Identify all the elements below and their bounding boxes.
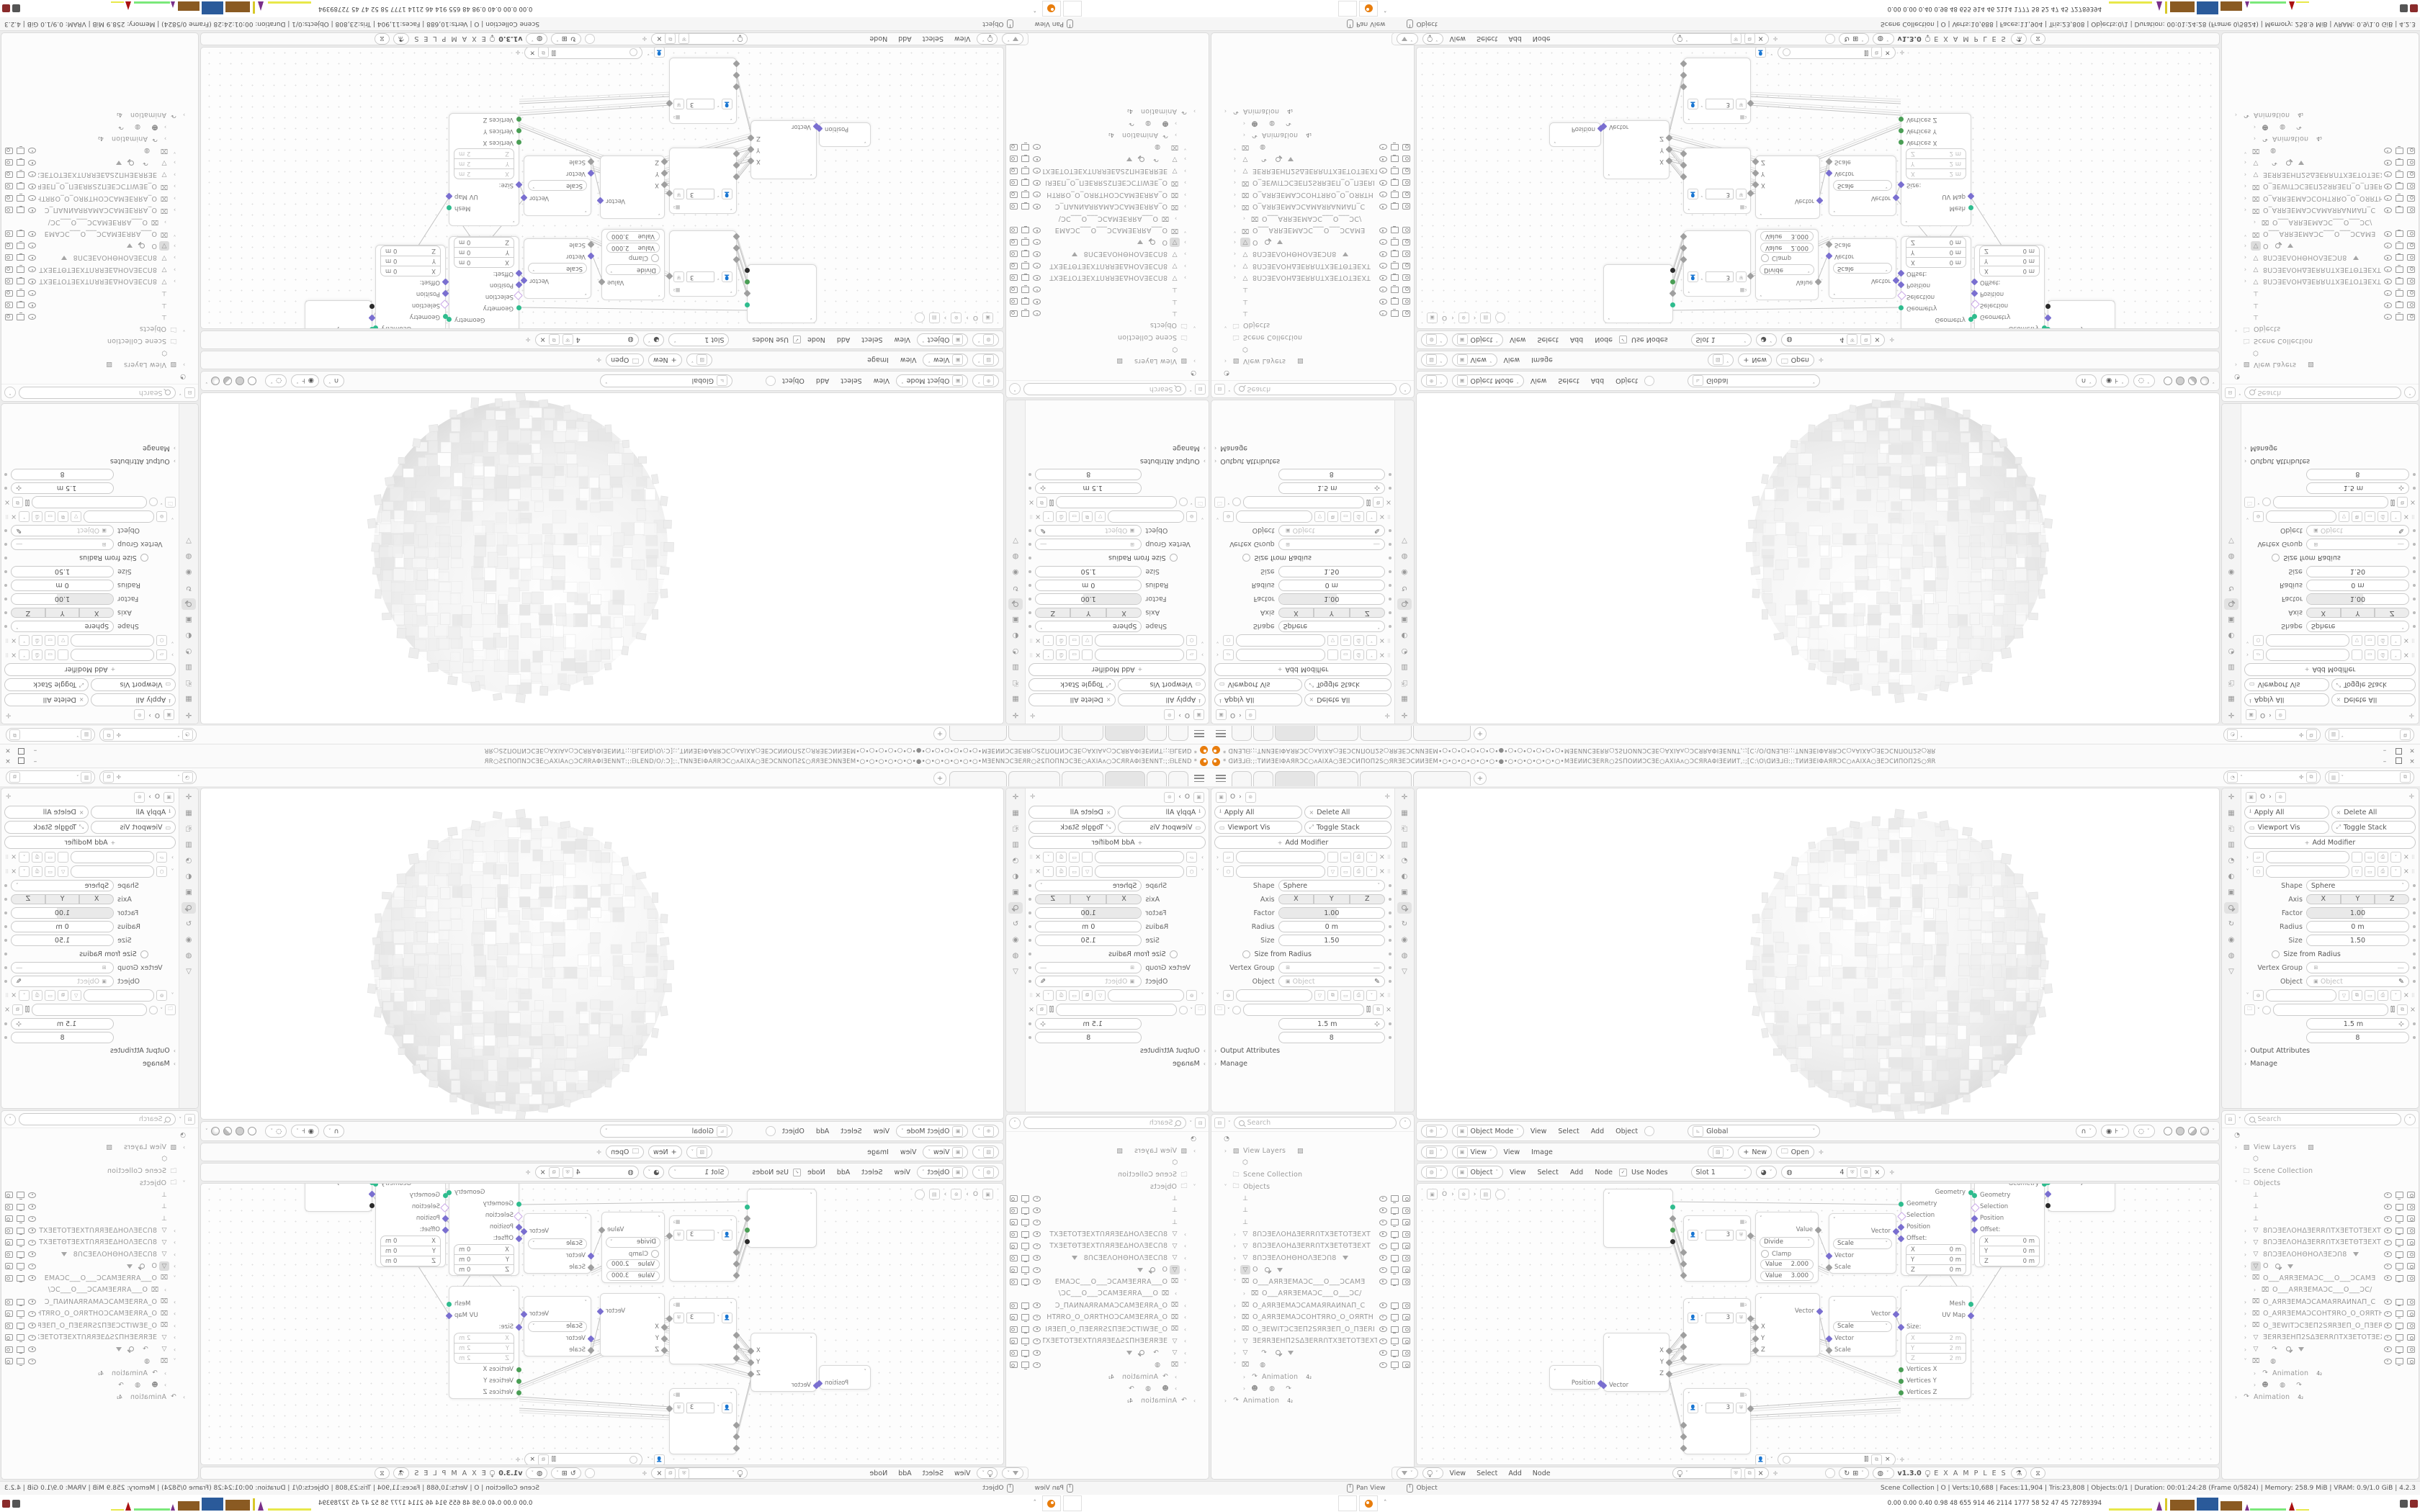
node[interactable]: ˅Position bbox=[819, 1365, 871, 1390]
viewport-menu-add[interactable]: Add bbox=[1589, 1128, 1606, 1135]
outliner-row[interactable]: ›⌧O_AЯRƎEMAƆCOHTЯRO_O_OЯRTH bbox=[3, 1308, 197, 1320]
viewport-disable-toggle[interactable] bbox=[1021, 298, 1029, 305]
node[interactable]: ˅GeometryGeometrySelectionPositionOffset… bbox=[449, 1183, 519, 1276]
hide-eye-toggle[interactable] bbox=[2384, 1251, 2392, 1257]
node-mini-row[interactable]: 👤˅3⛨ bbox=[1684, 270, 1750, 284]
render-disable-toggle[interactable] bbox=[5, 1323, 13, 1329]
render-icon[interactable]: ⎙ bbox=[1056, 635, 1067, 646]
workspace-tab[interactable] bbox=[949, 771, 1007, 786]
render-disable-toggle[interactable] bbox=[2407, 1310, 2415, 1317]
node-socket-input[interactable] bbox=[442, 279, 449, 286]
taskbar-blender-app[interactable] bbox=[1042, 1, 1061, 17]
hide-eye-toggle[interactable] bbox=[1379, 251, 1387, 257]
example-button-1[interactable]: ⚗ bbox=[393, 33, 410, 45]
render-disable-toggle[interactable] bbox=[2407, 243, 2415, 249]
render-disable-toggle[interactable] bbox=[1010, 1266, 1018, 1273]
node-socket-input[interactable] bbox=[2045, 315, 2052, 322]
node[interactable]: ˅▦₃👤˅3⛨ bbox=[669, 148, 737, 214]
viewport-vis-button[interactable]: ▭Viewport Vis bbox=[2244, 678, 2329, 691]
pin-icon[interactable]: ✛ bbox=[117, 774, 122, 780]
node-socket-output[interactable] bbox=[1816, 197, 1824, 204]
apply-all-button[interactable]: ⭳Apply All bbox=[2244, 806, 2329, 819]
outliner-row[interactable]: ⬡ bbox=[3, 347, 197, 359]
render-disable-toggle[interactable] bbox=[5, 195, 13, 202]
delete-all-button[interactable]: ×Delete All bbox=[1028, 806, 1116, 819]
properties-tab[interactable]: ◔ bbox=[1008, 855, 1023, 866]
node-socket-input[interactable] bbox=[1826, 1335, 1833, 1342]
hide-eye-toggle[interactable] bbox=[28, 1335, 36, 1341]
outliner-row[interactable]: ›☻◍↷ bbox=[1213, 1383, 1412, 1395]
viewport-disable-toggle[interactable] bbox=[1391, 274, 1399, 281]
node-socket-input[interactable] bbox=[1680, 174, 1688, 181]
hide-eye-toggle[interactable] bbox=[28, 160, 36, 166]
geonodes-size-field[interactable]: 1.5 m⊹ bbox=[2306, 1018, 2409, 1030]
copy-icon[interactable]: ⧉ bbox=[2306, 729, 2317, 740]
render-disable-toggle[interactable] bbox=[1402, 227, 1410, 233]
outliner-search-input[interactable]: Search bbox=[1234, 383, 1397, 395]
node-socket-input[interactable] bbox=[516, 181, 523, 189]
modifier-name-field[interactable] bbox=[1236, 989, 1312, 1002]
outliner-row[interactable]: ›▽8ՈƆƎEΛOHΘHOΛƎEƆՈ8 bbox=[3, 252, 197, 264]
taskbar-slot[interactable] bbox=[1063, 1, 1082, 17]
view-layer-name-field[interactable] bbox=[22, 730, 74, 739]
filter-dropdown[interactable]: ˅ bbox=[4, 1114, 16, 1125]
shading-rendered-button[interactable] bbox=[212, 1127, 220, 1135]
hide-eye-toggle[interactable] bbox=[1033, 144, 1041, 150]
copy-icon[interactable]: ⧉ bbox=[2397, 1004, 2408, 1015]
properties-tab[interactable]: ▦ bbox=[1397, 807, 1412, 819]
properties-tab[interactable]: ▦ bbox=[1397, 693, 1412, 705]
shader-menu-node[interactable]: Node bbox=[1592, 336, 1615, 344]
taskbar-blender-app[interactable] bbox=[1042, 1495, 1061, 1511]
material-icon-button[interactable]: ◕˅ bbox=[1756, 1166, 1778, 1179]
outliner-row[interactable]: 🗀Scene Collection bbox=[3, 335, 197, 347]
outliner-row[interactable]: ›▽ƎEЯRƎEHΠ2SΔƎERRՈTXƎETOTƎEXT bbox=[1213, 1336, 1412, 1348]
properties-tab[interactable]: ◐ bbox=[2224, 630, 2238, 642]
viewport-disable-toggle[interactable] bbox=[2396, 1346, 2403, 1353]
outliner-row[interactable]: ›▨View Layers▨ bbox=[3, 1142, 197, 1154]
properties-tab[interactable]: ◔ bbox=[2224, 646, 2238, 657]
properties-tab[interactable]: ▥ bbox=[1397, 662, 1412, 673]
render-icon[interactable]: ⎙ bbox=[32, 866, 42, 877]
node-socket-input[interactable] bbox=[1972, 1193, 1977, 1198]
node-socket-output[interactable] bbox=[748, 1347, 755, 1354]
geo-menu-select[interactable]: Select bbox=[920, 1470, 946, 1477]
apply-all-button[interactable]: ⭳Apply All bbox=[1214, 806, 1302, 819]
remove-modifier[interactable]: × bbox=[2403, 853, 2409, 861]
viewport-disable-toggle[interactable] bbox=[1021, 263, 1029, 269]
outliner-row[interactable]: 🗀Scene Collection bbox=[2223, 1166, 2417, 1178]
manage-collapse[interactable]: ›Manage bbox=[1028, 1058, 1206, 1069]
node-vector-field[interactable]: X0 m bbox=[454, 1244, 514, 1255]
viewport-disable-toggle[interactable] bbox=[1391, 1255, 1399, 1261]
toggle-stack-button[interactable]: ⤢Toggle Stack bbox=[4, 678, 89, 691]
viewport-vis-button[interactable]: ▭Viewport Vis bbox=[91, 821, 176, 834]
axis-toggle[interactable]: XYZ bbox=[1035, 608, 1142, 618]
node-socket-input[interactable] bbox=[1971, 1215, 1978, 1222]
modifier-name-field[interactable] bbox=[2266, 989, 2336, 1002]
outliner-row[interactable]: ›▽↷ bbox=[3, 157, 197, 169]
outliner-row[interactable]: 🗀Scene Collection bbox=[2223, 335, 2417, 347]
outliner-row[interactable]: ˅⌧◍ bbox=[2223, 145, 2417, 157]
hide-eye-toggle[interactable] bbox=[28, 279, 36, 284]
editor-type-button[interactable]: ◍˅ bbox=[1421, 1166, 1448, 1179]
add-modifier-button[interactable]: +Add Modifier bbox=[1214, 663, 1391, 676]
vertex-group-field[interactable]: ⊞— bbox=[1035, 539, 1142, 550]
node-socket-input[interactable] bbox=[588, 241, 595, 248]
collapse-caret[interactable]: ˆ bbox=[1034, 5, 1037, 12]
geonodes-count-field[interactable]: 8 bbox=[2306, 469, 2409, 480]
render-disable-toggle[interactable] bbox=[1402, 298, 1410, 305]
realtime-icon[interactable]: ▭ bbox=[1069, 635, 1080, 646]
node-header[interactable]: ˅ bbox=[820, 1366, 870, 1377]
node[interactable]: ˅▦₃👤˅3⛨ bbox=[1683, 148, 1751, 214]
modifier-name-field[interactable] bbox=[1095, 634, 1184, 647]
node-socket-input[interactable] bbox=[516, 1367, 521, 1372]
hide-eye-toggle[interactable] bbox=[1033, 1255, 1041, 1261]
viewport-disable-toggle[interactable] bbox=[1021, 156, 1029, 162]
node-socket-output[interactable] bbox=[748, 1370, 755, 1377]
hide-eye-toggle[interactable] bbox=[1033, 1362, 1041, 1368]
refresh-button[interactable]: ↻⊞˅ bbox=[551, 1467, 581, 1479]
properties-tab[interactable]: ▽ bbox=[181, 966, 196, 977]
node-socket-input[interactable] bbox=[588, 158, 595, 166]
render-disable-toggle[interactable] bbox=[1402, 1231, 1410, 1238]
node[interactable]: ˅ValueDivide˅ClampValue2.000Value3.000 bbox=[601, 1212, 665, 1283]
size-field[interactable]: 1.50 bbox=[1278, 566, 1385, 577]
node-group-row[interactable]: 🗀˅⫿⫿⧉× bbox=[1214, 496, 1391, 508]
render-disable-toggle[interactable] bbox=[1402, 239, 1410, 246]
outliner-row[interactable]: ›▽8ՈƆƎEΛOHΔƎERRՈTXƎETOTƎEXT bbox=[1008, 1228, 1207, 1241]
properties-tab[interactable]: ⎗ bbox=[181, 678, 196, 689]
render-disable-toggle[interactable] bbox=[5, 1263, 13, 1269]
pin-icon[interactable]: ✛ bbox=[526, 337, 531, 343]
node-select-row[interactable]: Scale˅ bbox=[1829, 1320, 1896, 1333]
use-nodes-checkbox[interactable]: ✓ bbox=[1619, 336, 1627, 344]
outliner-row[interactable]: ⊥ bbox=[1008, 307, 1207, 320]
add-modifier-button[interactable]: +Add Modifier bbox=[1028, 663, 1206, 676]
node-socket-input[interactable] bbox=[1971, 290, 1978, 297]
refresh-button[interactable]: ↻⊞˅ bbox=[1839, 33, 1868, 45]
node-vector-field[interactable]: Y2 m bbox=[1906, 1344, 1966, 1354]
outliner-row[interactable]: ›⌧O_ƎEWITƆCƎEΠ2SЯRƎEΠ_O_ΠƎERI bbox=[3, 181, 197, 193]
axis-y[interactable]: Y bbox=[2341, 894, 2375, 904]
node-header[interactable]: ˅ bbox=[751, 167, 816, 179]
extras-dropdown[interactable]: ˅ bbox=[19, 649, 30, 660]
node-socket-output[interactable] bbox=[447, 206, 452, 211]
size-from-radius-radio[interactable] bbox=[1170, 950, 1178, 958]
hide-eye-toggle[interactable] bbox=[1033, 1279, 1041, 1284]
render-disable-toggle[interactable] bbox=[5, 148, 13, 154]
render-disable-toggle[interactable] bbox=[1402, 1255, 1410, 1261]
properties-tab[interactable]: ✛ bbox=[1397, 791, 1412, 803]
render-disable-toggle[interactable] bbox=[1402, 156, 1410, 162]
node-socket-input[interactable] bbox=[1899, 140, 1904, 145]
properties-tab[interactable]: ▦ bbox=[181, 693, 196, 705]
geonodes-size-field[interactable]: 1.5 m⊹ bbox=[1278, 482, 1385, 494]
scene-name-field[interactable] bbox=[123, 730, 175, 739]
extras-dropdown[interactable]: ˅ bbox=[1043, 635, 1054, 646]
render-disable-toggle[interactable] bbox=[1010, 144, 1018, 150]
modifier-header-row[interactable]: ›▱ ▭⎙˅×⠿ bbox=[1214, 649, 1391, 661]
outliner-row[interactable]: ›↷Animation4₂ bbox=[3, 1391, 197, 1403]
outliner-row[interactable]: ˅⌧O___AЯRƎEMAƆC___O___ƆCAMƎ bbox=[1008, 225, 1207, 237]
node-vector-field[interactable]: Z0 m bbox=[1906, 237, 1966, 247]
render-disable-toggle[interactable] bbox=[1010, 179, 1018, 186]
node-socket-output[interactable] bbox=[1670, 280, 1675, 285]
render-disable-toggle[interactable] bbox=[1010, 1362, 1018, 1368]
manage-collapse[interactable]: ›Manage bbox=[4, 1058, 176, 1069]
manage-collapse[interactable]: ›Manage bbox=[1028, 443, 1206, 454]
properties-tab[interactable]: ↻ bbox=[1397, 918, 1412, 930]
display-mode-select[interactable]: ⊟ bbox=[184, 387, 195, 398]
node[interactable]: ˅VectorXYZ bbox=[600, 1293, 665, 1356]
node-socket-input[interactable] bbox=[516, 1202, 521, 1207]
viewport-disable-toggle[interactable] bbox=[1021, 1207, 1029, 1214]
outliner-row[interactable]: ›↷Animation4₂ bbox=[1213, 1371, 1412, 1383]
viewport-disable-toggle[interactable] bbox=[1021, 1219, 1029, 1225]
realtime-icon[interactable]: ▭ bbox=[1069, 649, 1080, 660]
outliner-row[interactable]: ›▽8ՈƆƎEΛOHΔƎERRՈTXƎETOTƎEXT bbox=[1213, 1228, 1412, 1241]
geo-menu-add[interactable]: Add bbox=[1506, 1470, 1523, 1477]
outliner-row[interactable]: ˅⌧O___AЯRƎEMAƆC___O___ƆCAMƎ bbox=[3, 1272, 197, 1284]
material-icon-button[interactable]: ◕˅ bbox=[643, 1166, 665, 1179]
hamburger-menu-icon[interactable] bbox=[1216, 775, 1226, 782]
add-modifier-button[interactable]: +Add Modifier bbox=[2244, 836, 2416, 849]
node[interactable]: ˅ bbox=[747, 264, 817, 323]
material-datablock[interactable]: ◍4⛨⧉× bbox=[1781, 333, 1885, 346]
outliner-row[interactable]: ˅⌧O___AЯRƎEMAƆC___O___ƆCAMƎ bbox=[1213, 225, 1412, 237]
viewport-menu-view[interactable]: View bbox=[1528, 377, 1549, 385]
node-group-row[interactable]: 🗀˅⫿⫿⧉× bbox=[4, 496, 176, 508]
node-header[interactable]: ˅ bbox=[1604, 311, 1672, 323]
render-disable-toggle[interactable] bbox=[1402, 1302, 1410, 1309]
geonodes-datablock[interactable]: ⧬˅⛨⧉× bbox=[1672, 33, 1769, 45]
node-vector-field[interactable]: Z0 m bbox=[380, 246, 441, 256]
viewport-disable-toggle[interactable] bbox=[2396, 159, 2403, 166]
viewport-disable-toggle[interactable] bbox=[1021, 274, 1029, 281]
modifier-name-field[interactable] bbox=[71, 851, 154, 863]
scene-selector[interactable]: ◔˅ ✛ ⧉ bbox=[2223, 728, 2320, 742]
node-socket-input[interactable] bbox=[1899, 1379, 1904, 1384]
pin-icon[interactable]: ✛ bbox=[1889, 1169, 1894, 1176]
render-disable-toggle[interactable] bbox=[1402, 1195, 1410, 1202]
node-socket-input[interactable] bbox=[443, 1193, 448, 1198]
open-image-button[interactable]: 🗀Open bbox=[606, 354, 644, 366]
viewport-disable-toggle[interactable] bbox=[17, 1310, 24, 1317]
node-vector-field[interactable]: X2 m bbox=[1906, 168, 1966, 179]
viewport-disable-toggle[interactable] bbox=[17, 314, 24, 320]
outliner-row[interactable]: ›⌧O___AЯRƎEMAƆC___O___ƆC/ bbox=[2223, 216, 2417, 228]
node-socket-output[interactable] bbox=[447, 1302, 452, 1307]
render-disable-toggle[interactable] bbox=[5, 1239, 13, 1246]
outliner-row[interactable]: ›▽O bbox=[3, 1261, 197, 1273]
shading-wireframe-button[interactable] bbox=[2164, 1127, 2172, 1135]
outliner-row[interactable]: ›☻◍↷ bbox=[2223, 121, 2417, 133]
realtime-icon[interactable]: ▭ bbox=[45, 511, 55, 522]
node[interactable]: ˅VectorScale˅VectorScale bbox=[524, 238, 591, 299]
properties-tab[interactable]: ↻ bbox=[1008, 582, 1023, 594]
viewport-disable-toggle[interactable] bbox=[17, 183, 24, 189]
node[interactable]: ˅ValueDivide˅ClampValue2.000Value3.000 bbox=[601, 229, 665, 300]
axis-x[interactable]: X bbox=[2306, 894, 2341, 904]
hide-eye-toggle[interactable] bbox=[2384, 184, 2392, 189]
outliner-row[interactable]: ›⌧O_AЯRƎEMAƆCAMAЯRAͶNAΠ_C bbox=[1213, 1300, 1412, 1312]
example-button-1[interactable]: ⚗ bbox=[2011, 33, 2027, 45]
output-attributes-collapse[interactable]: ›Output Attributes bbox=[1214, 456, 1391, 467]
shading-dropdown[interactable]: ˅ bbox=[205, 1128, 208, 1134]
hide-eye-toggle[interactable] bbox=[1033, 1243, 1041, 1249]
modifier-name-field[interactable] bbox=[1236, 510, 1312, 523]
render-disable-toggle[interactable] bbox=[2407, 1334, 2415, 1341]
add-workspace-button[interactable]: + bbox=[1474, 772, 1487, 785]
properties-tab[interactable]: ↻ bbox=[1008, 918, 1023, 930]
output-attributes-collapse[interactable]: ›Output Attributes bbox=[2244, 456, 2416, 467]
render-disable-toggle[interactable] bbox=[2407, 1204, 2415, 1210]
node-field-row[interactable]: Value3.000 bbox=[1756, 230, 1818, 241]
hide-eye-toggle[interactable] bbox=[1379, 287, 1387, 292]
node[interactable]: ˅Geometry bbox=[305, 1183, 372, 1212]
node-header[interactable]: ˅▦₃ bbox=[1684, 1389, 1750, 1400]
mode-select[interactable]: ▣Object Mode˅ bbox=[1452, 1125, 1524, 1138]
viewport-disable-toggle[interactable] bbox=[1391, 1243, 1399, 1249]
remove-modifier[interactable]: × bbox=[1035, 853, 1041, 861]
outliner-row[interactable]: ›▨View Layers▨ bbox=[2223, 359, 2417, 371]
render-disable-toggle[interactable] bbox=[1010, 251, 1018, 257]
shader-menu-select[interactable]: Select bbox=[859, 336, 884, 344]
image-menu-image[interactable]: Image bbox=[1529, 1148, 1555, 1156]
realtime-icon[interactable]: ▭ bbox=[1340, 866, 1351, 877]
node-header[interactable]: ˅ bbox=[1604, 1333, 1669, 1345]
node-socket-input[interactable] bbox=[1971, 1203, 1980, 1212]
outliner-row[interactable]: ›⌧O___AЯRƎEMAƆC___O___ƆC/ bbox=[1213, 1288, 1412, 1300]
render-disable-toggle[interactable] bbox=[1010, 1326, 1018, 1333]
factor-slider[interactable]: 1.00 bbox=[11, 907, 114, 919]
modifier-name-field[interactable] bbox=[71, 865, 154, 878]
outliner-row[interactable]: ˅⌧◍ bbox=[1008, 1359, 1207, 1372]
node-header[interactable]: ˅ bbox=[1829, 1214, 1896, 1225]
properties-tab[interactable]: ▦ bbox=[1008, 693, 1023, 705]
hide-eye-toggle[interactable] bbox=[1033, 1302, 1041, 1308]
hide-eye-toggle[interactable] bbox=[28, 1311, 36, 1317]
node-mini-row[interactable]: 👤˅3⛨ bbox=[1684, 97, 1750, 112]
outliner-row[interactable]: ˅⌧O___AЯRƎEMAƆC___O___ƆCAMƎ bbox=[1008, 1276, 1207, 1288]
node-header[interactable]: ˅▦₃ bbox=[670, 284, 736, 296]
extras-dropdown[interactable]: ˅ bbox=[2390, 635, 2401, 646]
node-socket-output[interactable] bbox=[1893, 194, 1900, 202]
outliner-row[interactable]: ⬡ bbox=[2223, 347, 2417, 359]
render-disable-toggle[interactable] bbox=[2407, 314, 2415, 320]
remove-modifier[interactable]: × bbox=[1035, 651, 1041, 659]
node-socket-input[interactable] bbox=[1898, 1235, 1905, 1242]
node-socket-output[interactable] bbox=[1968, 193, 1975, 200]
hide-eye-toggle[interactable] bbox=[28, 1264, 36, 1269]
hide-eye-toggle[interactable] bbox=[28, 1359, 36, 1364]
node[interactable]: ˅▦₃👤˅3⛨ bbox=[669, 58, 737, 124]
outliner-search-input[interactable]: Search bbox=[19, 1113, 176, 1125]
viewport-disable-toggle[interactable] bbox=[2396, 266, 2403, 273]
material-slot-select[interactable]: Slot 1˅ bbox=[668, 1166, 729, 1179]
orientation-select[interactable]: ⊾Global˅ bbox=[600, 374, 732, 387]
viewport-disable-toggle[interactable] bbox=[1391, 203, 1399, 210]
outliner-row[interactable]: ⬡ bbox=[3, 1153, 197, 1166]
outliner-row[interactable]: ˅⌧◍ bbox=[2223, 1356, 2417, 1368]
hide-eye-toggle[interactable] bbox=[1033, 1267, 1041, 1273]
node-socket-input[interactable] bbox=[1680, 233, 1688, 240]
apply-all-button[interactable]: ⭳Apply All bbox=[91, 806, 176, 819]
size-from-radius-radio[interactable] bbox=[140, 950, 148, 958]
hide-eye-toggle[interactable] bbox=[2384, 1335, 2392, 1341]
node-header[interactable]: ˅▦₃ bbox=[670, 1389, 736, 1400]
apply-all-button[interactable]: ⭳Apply All bbox=[91, 693, 176, 706]
outliner-row[interactable]: ›▽8ՈƆƎEΛOHΘHOΛƎEƆՈ8 bbox=[1213, 1252, 1412, 1264]
viewport-disable-toggle[interactable] bbox=[1391, 156, 1399, 162]
node-socket-output[interactable] bbox=[748, 1359, 755, 1366]
hide-eye-toggle[interactable] bbox=[1033, 275, 1041, 281]
node-socket-input[interactable] bbox=[733, 60, 740, 68]
node-socket-input[interactable] bbox=[2045, 1203, 2051, 1208]
add-modifier-button[interactable]: +Add Modifier bbox=[1028, 836, 1206, 849]
extras-dropdown[interactable]: ˅ bbox=[19, 511, 30, 522]
viewport-disable-toggle[interactable] bbox=[2396, 1215, 2403, 1222]
node[interactable]: ˅ bbox=[1603, 1189, 1673, 1248]
render-disable-toggle[interactable] bbox=[1402, 1243, 1410, 1249]
node-socket-output[interactable] bbox=[1815, 1226, 1822, 1233]
modifier-header-row[interactable]: ›▱ ▭⎙˅×⠿ bbox=[1028, 649, 1206, 661]
modifier-header-row[interactable]: ˅⊚▽⧉▭⎙˅×⠿ bbox=[2244, 510, 2416, 523]
realtime-icon[interactable]: ▭ bbox=[45, 649, 55, 660]
filter-dropdown[interactable]: ˅ bbox=[1399, 384, 1411, 395]
gizmo-toggle[interactable]: ◌˅ bbox=[266, 1125, 287, 1138]
modifier-header-row[interactable]: ›▱ ▭⎙˅×⠿ bbox=[1028, 851, 1206, 863]
outliner-row[interactable]: ⊥ bbox=[2223, 311, 2417, 323]
hide-eye-toggle[interactable] bbox=[1379, 239, 1387, 245]
maximize-button[interactable] bbox=[2396, 748, 2402, 755]
delete-all-button[interactable]: ×Delete All bbox=[2331, 693, 2416, 706]
manage-collapse[interactable]: ›Manage bbox=[1214, 1058, 1391, 1069]
node-socket-output[interactable] bbox=[748, 158, 755, 165]
node-socket-input[interactable] bbox=[440, 300, 449, 310]
node-field-row[interactable]: Value3.000 bbox=[602, 1271, 664, 1282]
render-icon[interactable]: ⎙ bbox=[32, 649, 42, 660]
node-socket-input[interactable] bbox=[733, 150, 740, 158]
properties-tab[interactable]: ✛ bbox=[2224, 791, 2238, 803]
unlink[interactable]: × bbox=[1386, 498, 1391, 506]
outliner-row[interactable]: ›▽ƎEЯRƎEHΠ2SΔƎERRՈTXƎETOTƎEXT bbox=[1008, 165, 1207, 177]
pin-icon[interactable]: ✛ bbox=[2408, 793, 2414, 801]
node-socket-input[interactable] bbox=[661, 181, 668, 189]
node-mini-row[interactable]: 👤˅3⛨ bbox=[1684, 1400, 1750, 1415]
shader-context-select[interactable]: ▣Object˅ bbox=[1452, 1166, 1503, 1179]
scene-name-field[interactable] bbox=[2245, 730, 2297, 739]
viewport-disable-toggle[interactable] bbox=[1021, 1279, 1029, 1285]
render-disable-toggle[interactable] bbox=[1402, 287, 1410, 293]
geo-menu-add[interactable]: Add bbox=[896, 1470, 913, 1477]
hide-eye-toggle[interactable] bbox=[28, 1240, 36, 1246]
apply-all-button[interactable]: ⭳Apply All bbox=[1119, 806, 1206, 819]
hide-eye-toggle[interactable] bbox=[1379, 1315, 1387, 1320]
hide-eye-toggle[interactable] bbox=[2384, 171, 2392, 177]
node-vector-field[interactable]: Z2 m bbox=[1906, 1354, 1966, 1364]
node-socket-input[interactable] bbox=[369, 328, 375, 330]
outliner-row[interactable]: ›☻◍↷ bbox=[1008, 117, 1207, 130]
render-disable-toggle[interactable] bbox=[1402, 1279, 1410, 1285]
node-vector-field[interactable]: Y0 m bbox=[1979, 256, 2040, 266]
viewport-disable-toggle[interactable] bbox=[1021, 1255, 1029, 1261]
realtime-icon[interactable]: ▭ bbox=[2365, 511, 2375, 522]
node-socket-input[interactable] bbox=[514, 292, 523, 301]
render-disable-toggle[interactable] bbox=[5, 1310, 13, 1317]
